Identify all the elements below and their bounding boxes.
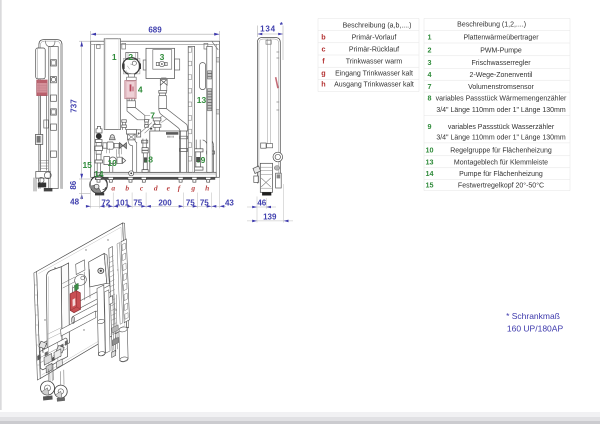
svg-text:Trinkwasser warm: Trinkwasser warm <box>346 59 403 66</box>
svg-text:14: 14 <box>94 169 104 179</box>
svg-text:75: 75 <box>186 199 195 208</box>
svg-text:139: 139 <box>263 212 277 221</box>
svg-text:4: 4 <box>428 70 432 79</box>
svg-text:a: a <box>111 184 115 193</box>
svg-text:g: g <box>190 184 195 193</box>
svg-text:101: 101 <box>116 199 130 208</box>
svg-text:h: h <box>321 79 325 88</box>
svg-text:13: 13 <box>197 95 207 105</box>
svg-text:3: 3 <box>160 52 165 62</box>
svg-text:1: 1 <box>428 33 432 42</box>
svg-text:15: 15 <box>82 160 92 170</box>
svg-text:PWM-Pumpe: PWM-Pumpe <box>480 48 522 55</box>
svg-text:3/4" Länge 110mm oder 1" Länge: 3/4" Länge 110mm oder 1" Länge 130mm <box>436 134 566 141</box>
svg-text:200: 200 <box>158 199 172 208</box>
svg-text:160 UP/180AP: 160 UP/180AP <box>507 324 564 334</box>
svg-text:134: 134 <box>260 24 276 33</box>
svg-text:variables Passstück Wasserzähl: variables Passstück Wasserzähler <box>448 124 555 131</box>
svg-text:d: d <box>154 184 158 193</box>
svg-text:43: 43 <box>225 199 234 208</box>
svg-text:Frischwasserregler: Frischwasserregler <box>471 60 531 67</box>
svg-text:14: 14 <box>426 169 434 178</box>
svg-text:3: 3 <box>428 58 432 67</box>
svg-text:h: h <box>205 184 209 193</box>
svg-text:Beschreibung (1,2,....): Beschreibung (1,2,....) <box>457 21 526 28</box>
svg-text:Plattenwärmeübertrager: Plattenwärmeübertrager <box>463 35 539 42</box>
svg-text:c: c <box>322 45 326 54</box>
svg-text:7: 7 <box>428 82 432 91</box>
svg-text:Pumpe für Flächenheizung: Pumpe für Flächenheizung <box>459 171 543 178</box>
svg-text:46: 46 <box>257 198 266 207</box>
svg-text:b: b <box>125 184 129 193</box>
svg-text:9: 9 <box>428 122 432 131</box>
svg-text:Regelgruppe für Flächenheizung: Regelgruppe für Flächenheizung <box>450 147 552 154</box>
svg-text:2-Wege-Zonenventil: 2-Wege-Zonenventil <box>470 72 533 79</box>
svg-text:75: 75 <box>200 199 209 208</box>
svg-text:48: 48 <box>70 197 79 206</box>
svg-text:Montageblech für Klemmleiste: Montageblech für Klemmleiste <box>454 160 548 167</box>
svg-text:9: 9 <box>201 155 206 165</box>
svg-text:10: 10 <box>107 158 117 168</box>
svg-text:15: 15 <box>426 180 434 189</box>
svg-text:2: 2 <box>428 46 432 55</box>
svg-text:Primär-Vorlauf: Primär-Vorlauf <box>352 34 397 41</box>
svg-text:7: 7 <box>150 110 155 120</box>
svg-text:variables Passstück Wärmemenge: variables Passstück Wärmemengenzähler <box>436 96 567 103</box>
svg-text:4: 4 <box>138 85 143 95</box>
svg-text:Primär-Rücklauf: Primär-Rücklauf <box>349 47 399 54</box>
svg-text:1: 1 <box>112 52 117 62</box>
svg-text:* Schrankmaß: * Schrankmaß <box>506 311 560 321</box>
svg-text:8: 8 <box>428 94 432 103</box>
svg-text:86: 86 <box>69 180 78 189</box>
svg-text:3/4" Länge 110mm oder 1" Länge: 3/4" Länge 110mm oder 1" Länge 130mm <box>436 107 566 114</box>
svg-text:13: 13 <box>426 158 434 167</box>
svg-text:10: 10 <box>426 145 434 154</box>
svg-text:72: 72 <box>101 199 110 208</box>
svg-text:Eingang Trinkwasser kalt: Eingang Trinkwasser kalt <box>335 71 413 78</box>
svg-text:Volumenstromsensor: Volumenstromsensor <box>468 84 534 91</box>
svg-text:Beschreibung (a,b,....): Beschreibung (a,b,....) <box>343 23 412 30</box>
svg-text:689: 689 <box>148 26 162 35</box>
svg-text:Festwertregelkopf 20°-50°C: Festwertregelkopf 20°-50°C <box>458 181 544 189</box>
svg-text:2: 2 <box>128 52 133 62</box>
svg-text:8: 8 <box>148 155 153 165</box>
svg-text:737: 737 <box>70 99 79 113</box>
svg-text:75: 75 <box>133 199 142 208</box>
svg-text:Ausgang Trinkwasser kalt: Ausgang Trinkwasser kalt <box>334 81 414 88</box>
svg-text:g: g <box>321 69 325 78</box>
svg-text:b: b <box>321 32 326 41</box>
